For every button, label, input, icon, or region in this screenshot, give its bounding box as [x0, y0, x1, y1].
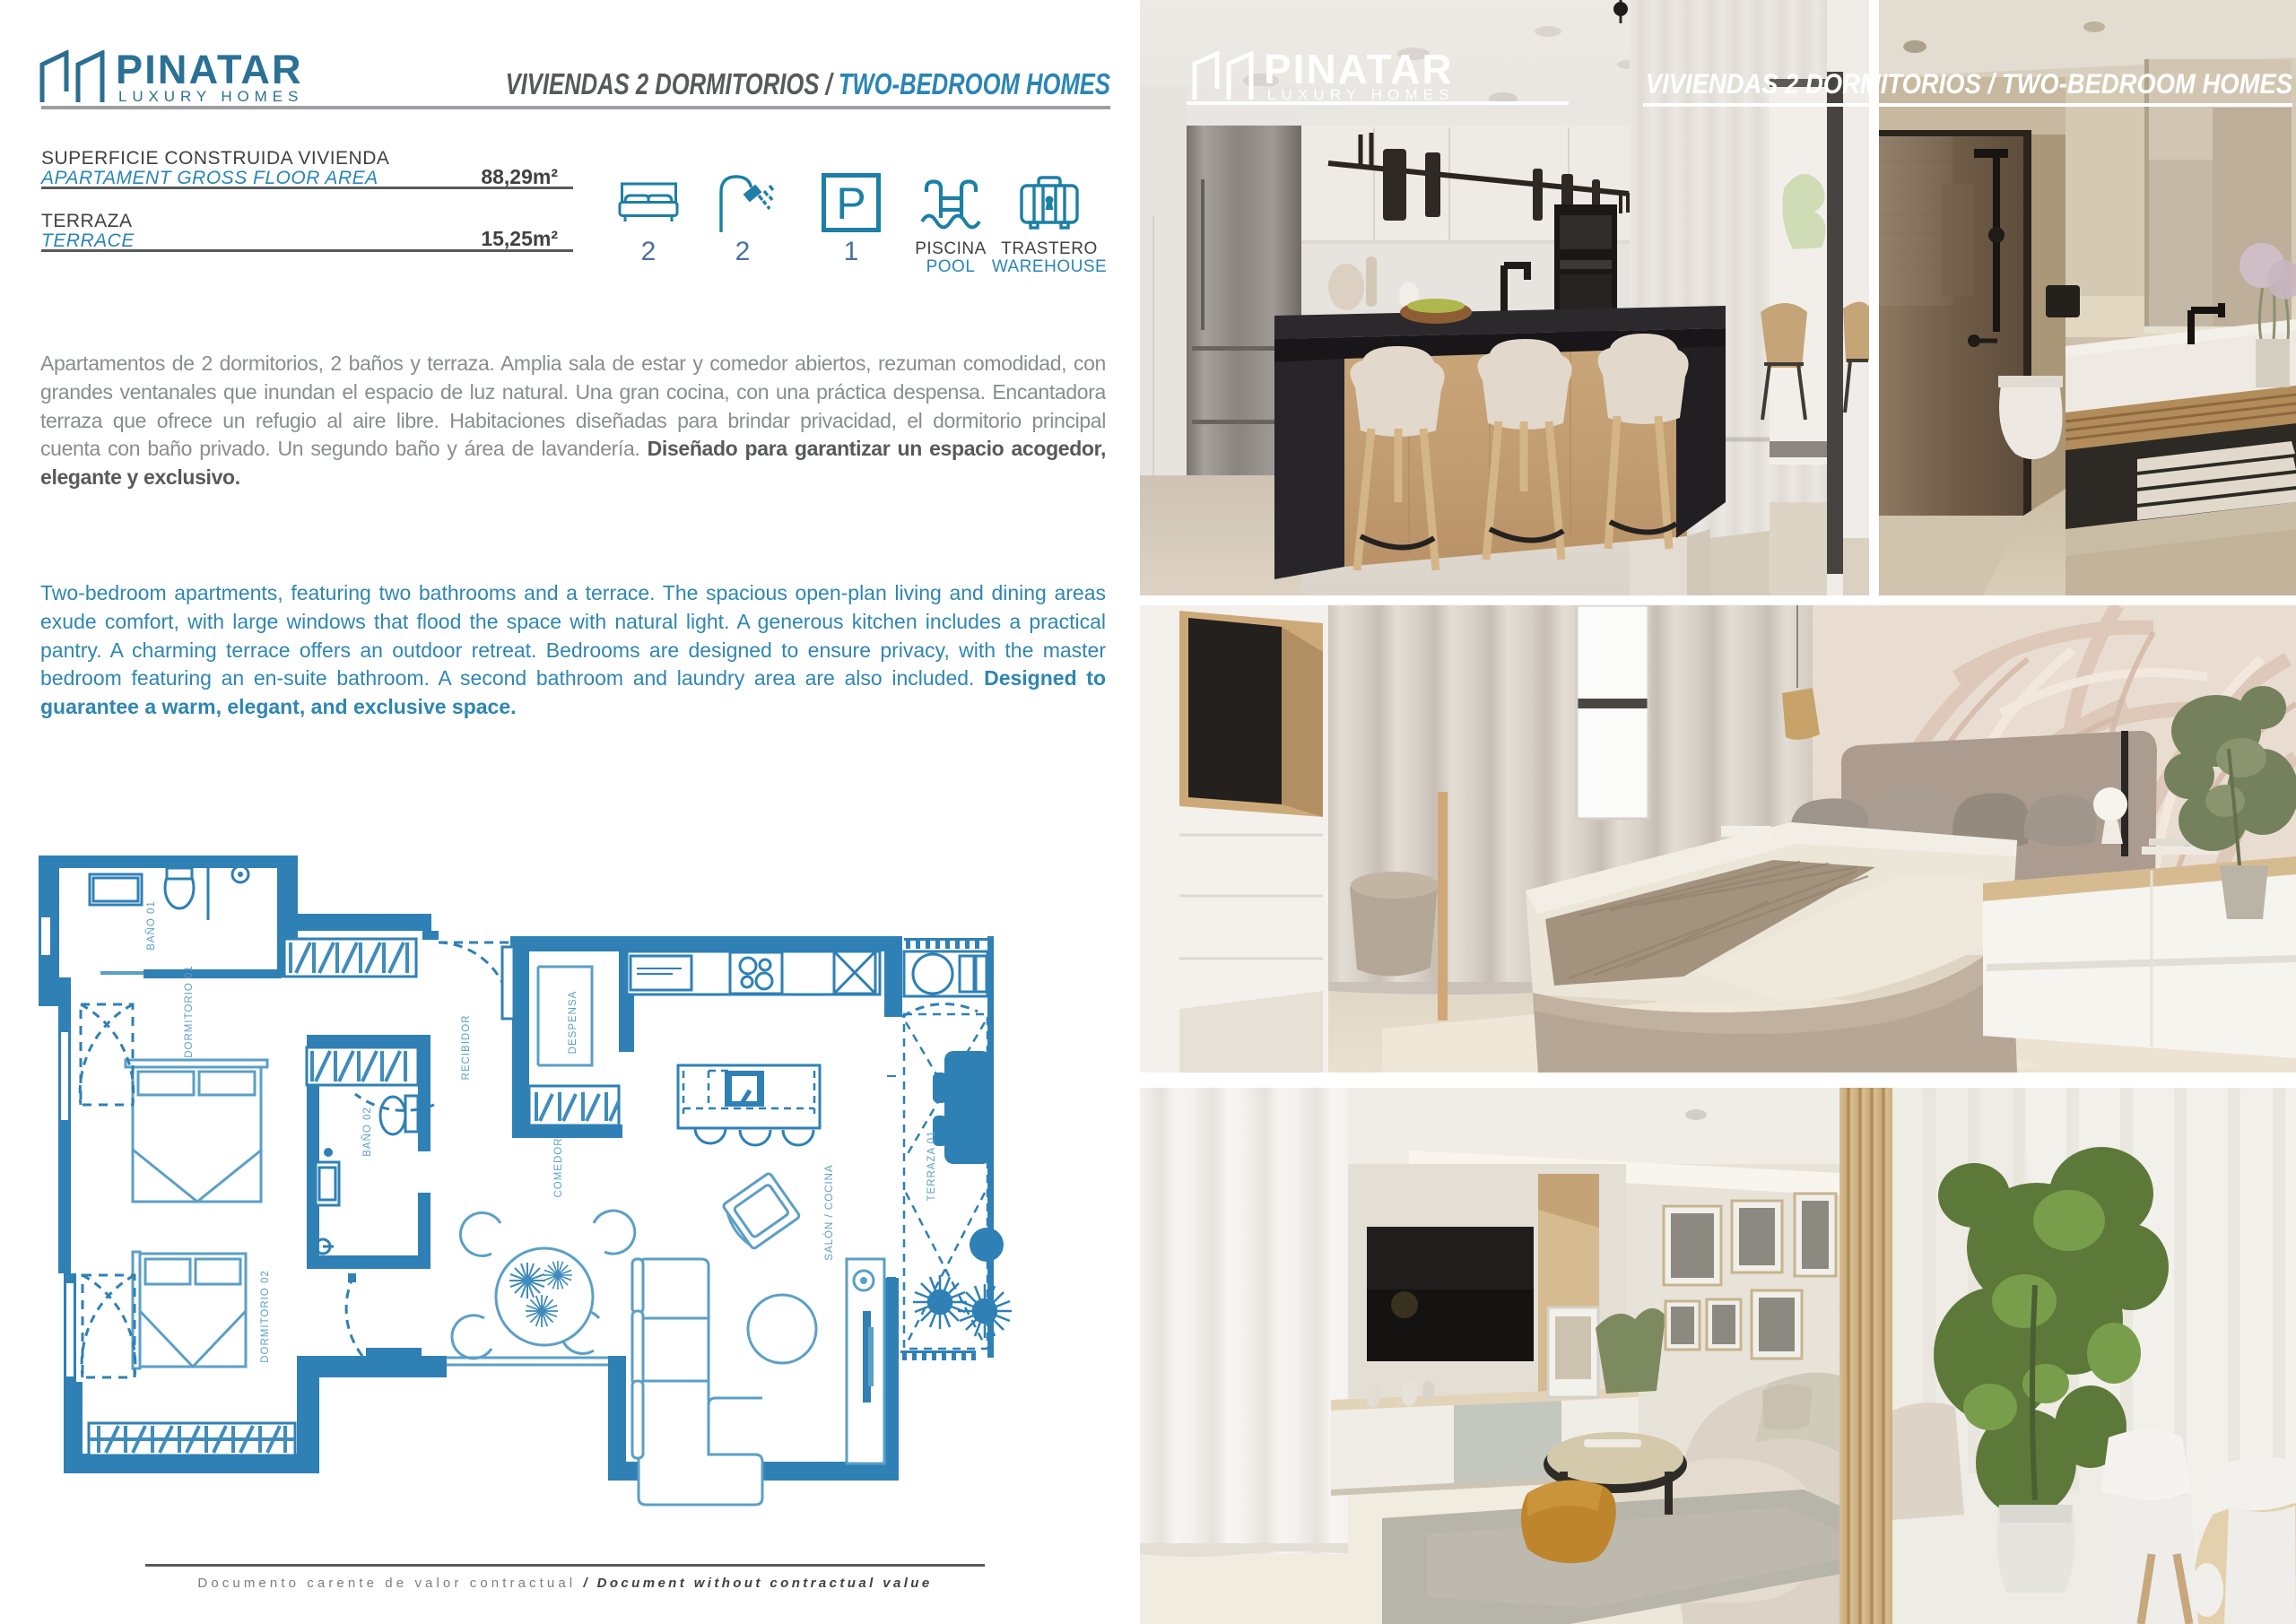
svg-text:SALÓN / COCINA: SALÓN / COCINA [823, 1164, 835, 1260]
svg-text:P: P [836, 178, 865, 229]
svg-text:DESPENSA: DESPENSA [568, 991, 578, 1055]
svg-text:DORMITORIO 02: DORMITORIO 02 [260, 1270, 271, 1363]
svg-text:RECIBIDOR: RECIBIDOR [461, 1015, 472, 1081]
svg-text:COMEDOR: COMEDOR [553, 1137, 564, 1197]
svg-text:TERRAZA 01: TERRAZA 01 [926, 1130, 937, 1201]
svg-text:DORMITORIO 01: DORMITORIO 01 [184, 965, 195, 1058]
svg-text:BAÑO 01: BAÑO 01 [145, 900, 157, 951]
svg-text:BAÑO 02: BAÑO 02 [361, 1107, 373, 1157]
